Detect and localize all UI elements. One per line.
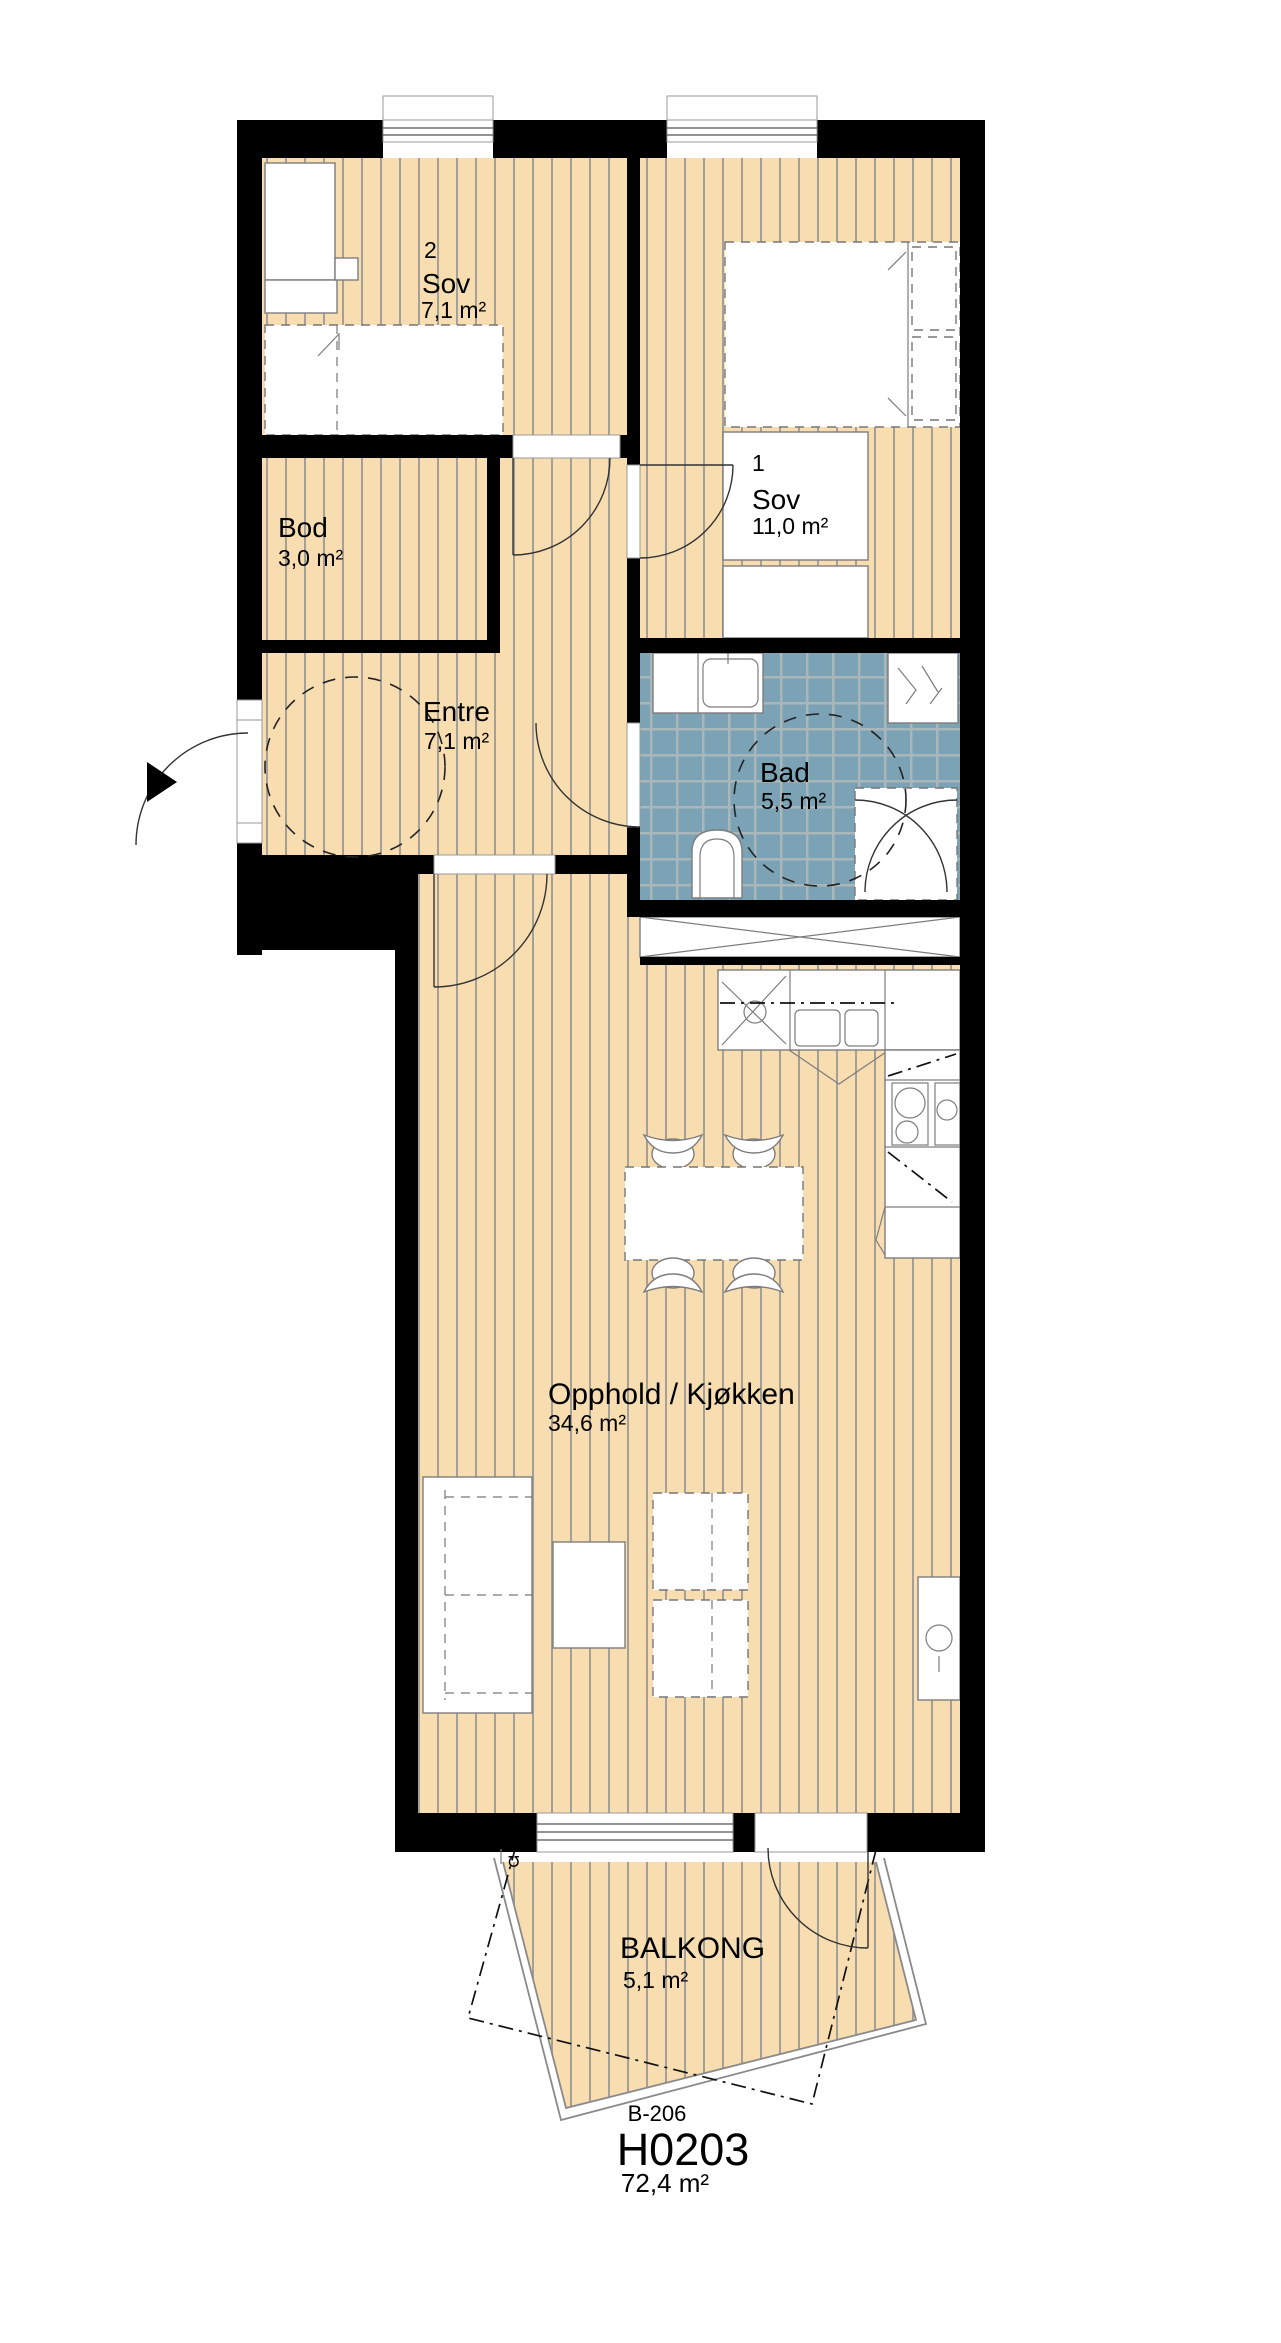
pillow [912, 247, 956, 330]
wardrobe [265, 163, 335, 280]
pillow [912, 337, 956, 420]
vanity-counter [653, 653, 763, 713]
entry-arrow-icon [147, 762, 177, 802]
wardrobe [723, 566, 868, 638]
room-name-entre: Entre [423, 696, 490, 727]
unit-labels: B-206 H0203 72,4 m² [617, 2101, 750, 2198]
bed-single [265, 325, 503, 435]
side-shelf [335, 258, 358, 280]
cabinet [265, 280, 337, 313]
building-code: B-206 [628, 2101, 687, 2126]
room-number-sov2: 2 [424, 237, 437, 263]
washing-machine [888, 653, 958, 723]
room-name-sov2: Sov [422, 268, 470, 299]
room-area-balkong: 5,1 m² [623, 1967, 689, 1993]
balcony-door-opening [755, 1813, 867, 1852]
room-area-bad: 5,5 m² [761, 788, 827, 814]
entry-door-opening [237, 700, 262, 843]
window [383, 120, 493, 142]
door-opening-sov2 [513, 435, 620, 458]
window-frame [383, 96, 493, 120]
room-name-bod: Bod [278, 512, 328, 543]
floor-plan-page: ℧ 2 Sov 7,1 m² 1 Sov 11,0 m² Bod 3,0 m² … [0, 0, 1281, 2343]
window-frame [667, 96, 817, 120]
window [667, 120, 817, 142]
kitchen-counter-right [885, 1050, 960, 1258]
room-name-balkong: BALKONG [620, 1932, 765, 1965]
floor-plan-drawing: ℧ 2 Sov 7,1 m² 1 Sov 11,0 m² Bod 3,0 m² … [0, 0, 1281, 2343]
dining-table [625, 1167, 803, 1260]
unit-total-area: 72,4 m² [621, 2168, 709, 2198]
door-opening-sov1 [627, 465, 640, 558]
room-area-entre: 7,1 m² [424, 728, 490, 754]
tall-unit [918, 1577, 960, 1700]
coffee-table [553, 1542, 625, 1648]
armchair [653, 1493, 748, 1590]
room-area-opphold: 34,6 m² [548, 1410, 626, 1436]
room-number-sov1: 1 [752, 450, 765, 476]
balcony-drain-symbol: ℧ [508, 1854, 519, 1871]
room-area-sov2: 7,1 m² [421, 297, 487, 323]
room-area-sov1: 11,0 m² [752, 513, 829, 539]
armchair [653, 1600, 748, 1697]
door-opening-entre [434, 855, 555, 874]
room-name-sov1: Sov [752, 484, 800, 515]
room-area-bod: 3,0 m² [278, 545, 344, 571]
door-opening-bad [627, 723, 640, 827]
hall-closet [640, 917, 960, 965]
room-name-opphold: Opphold / Kjøkken [548, 1378, 795, 1411]
room-name-bad: Bad [760, 757, 810, 788]
